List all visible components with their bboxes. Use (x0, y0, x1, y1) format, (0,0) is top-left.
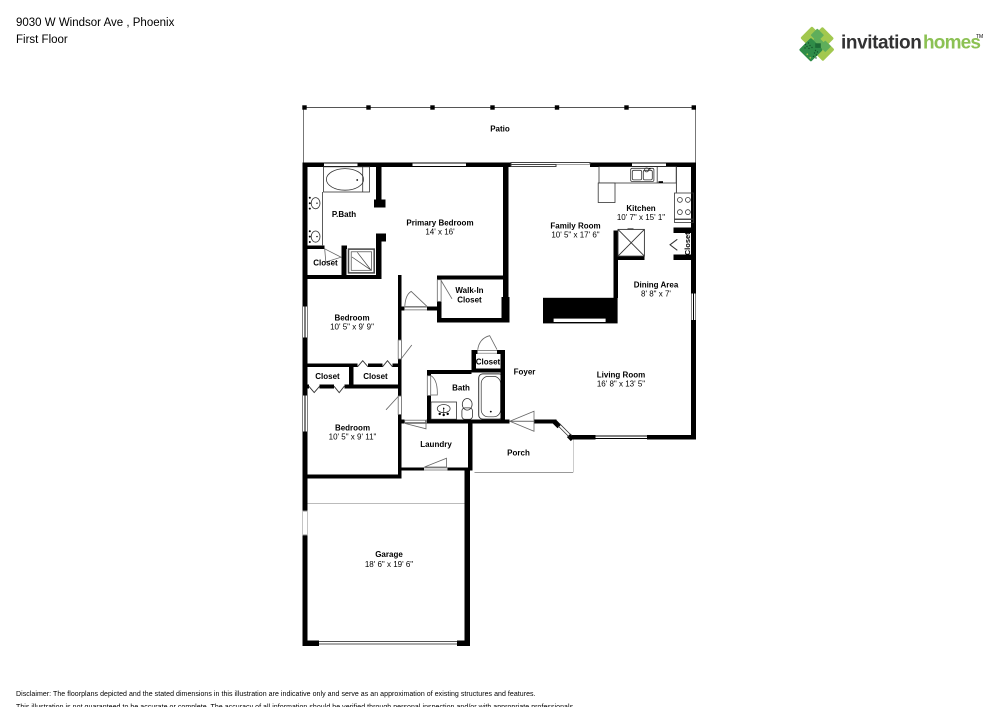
svg-text:Disclaimer: The floorplans dep: Disclaimer: The floorplans depicted and … (16, 691, 536, 698)
svg-text:Primary Bedroom: Primary Bedroom (406, 218, 473, 227)
svg-text:Fireplace: Fireplace (563, 306, 599, 315)
svg-text:Bedroom: Bedroom (334, 313, 369, 322)
svg-text:10' 7" x 15' 1": 10' 7" x 15' 1" (617, 213, 665, 222)
svg-text:16' 8" x 13' 5": 16' 8" x 13' 5" (597, 379, 645, 388)
svg-text:10' 5" x 17' 6": 10' 5" x 17' 6" (551, 230, 599, 239)
svg-text:Closet: Closet (315, 372, 340, 381)
svg-text:10' 5" x 9' 9": 10' 5" x 9' 9" (330, 322, 374, 331)
svg-text:Closet: Closet (457, 295, 482, 304)
svg-text:Garage: Garage (375, 550, 403, 559)
svg-text:First Floor: First Floor (16, 34, 68, 46)
svg-text:9030 W Windsor Ave , Phoenix: 9030 W Windsor Ave , Phoenix (16, 17, 175, 29)
svg-text:Patio: Patio (490, 125, 510, 134)
svg-text:8' 8" x 7': 8' 8" x 7' (641, 289, 671, 298)
svg-text:Family Room: Family Room (550, 221, 600, 230)
svg-text:Kitchen: Kitchen (626, 204, 655, 213)
svg-text:Walk-In: Walk-In (455, 286, 483, 295)
svg-text:Laundry: Laundry (420, 440, 452, 449)
svg-text:Foyer: Foyer (514, 368, 536, 377)
svg-text:10' 5" x 9' 11": 10' 5" x 9' 11" (329, 432, 377, 441)
svg-text:Dining Area: Dining Area (634, 280, 679, 289)
svg-text:14' x 16': 14' x 16' (425, 227, 455, 236)
svg-text:Closet: Closet (363, 372, 388, 381)
svg-text:Closet: Closet (476, 358, 501, 367)
svg-text:Bath: Bath (452, 384, 470, 393)
svg-text:Porch: Porch (507, 449, 530, 458)
svg-text:P.Bath: P.Bath (332, 210, 356, 219)
svg-text:invitationhomes: invitationhomes (841, 33, 980, 54)
svg-text:Closet: Closet (683, 232, 692, 255)
svg-text:18' 6" x 19' 6": 18' 6" x 19' 6" (365, 560, 413, 569)
svg-text:TM: TM (976, 34, 983, 40)
svg-text:Living Room: Living Room (597, 370, 645, 379)
svg-text:Closet: Closet (313, 259, 338, 268)
svg-text:Bedroom: Bedroom (335, 423, 370, 432)
